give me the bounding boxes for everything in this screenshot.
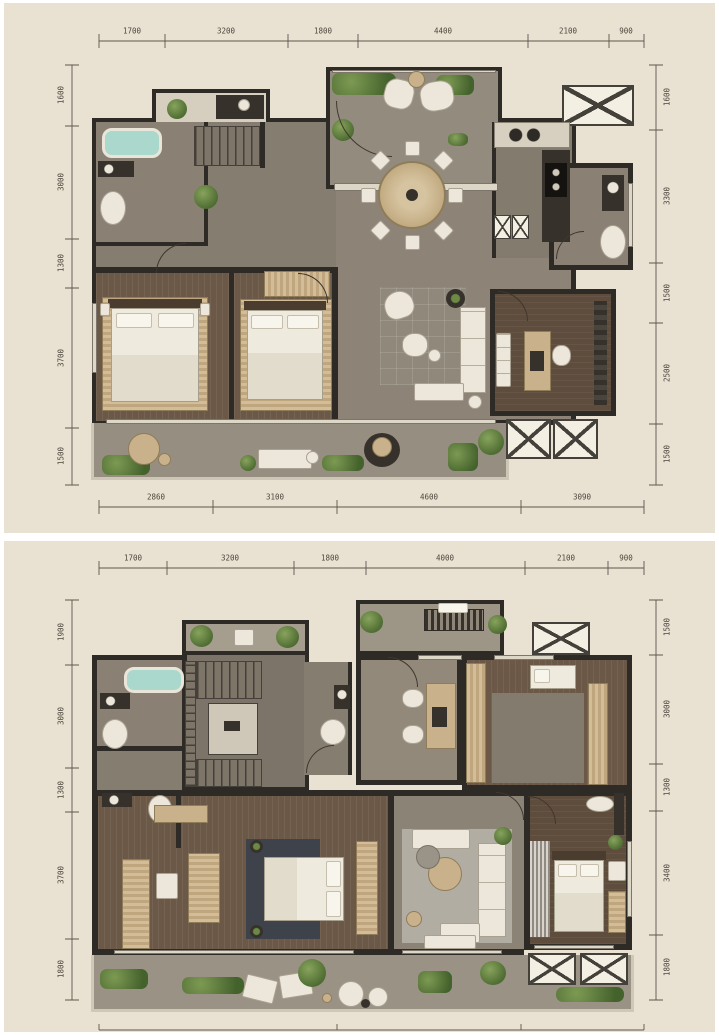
pouf [406, 911, 422, 927]
basin [586, 796, 614, 812]
floor-plan-sheet: { "palette": { "paper": "#e9e1d1", "wall… [0, 0, 719, 1035]
nightstand [100, 303, 110, 316]
nightstand [608, 861, 626, 881]
dimension-label: 3200 [217, 27, 235, 35]
dimension-label: 1600 [57, 86, 65, 104]
dimension-label: 1500 [57, 447, 65, 465]
ottoman [428, 349, 441, 362]
vanity-sink [100, 693, 130, 709]
side-table [322, 993, 332, 1003]
monitor [432, 707, 447, 727]
entry-basin [238, 99, 250, 111]
sill-plant [448, 133, 468, 146]
bench-cushion [438, 603, 468, 613]
bench [188, 853, 220, 923]
dimension-label: 3000 [663, 700, 671, 718]
cooktop [545, 163, 567, 197]
stairs [196, 759, 262, 787]
dimension-label: 1300 [663, 778, 671, 796]
dimension-label: 3090 [573, 493, 591, 501]
coffee-table [416, 845, 440, 869]
pillow [158, 313, 194, 328]
blanket [555, 893, 603, 931]
appliance [512, 215, 529, 239]
console-table [414, 383, 464, 401]
shrubs [448, 443, 478, 471]
pillow [558, 864, 577, 877]
window [494, 655, 554, 660]
dimension-label: 2860 [147, 493, 165, 501]
console-table [424, 935, 476, 949]
armchair [402, 333, 428, 357]
plant [298, 959, 326, 987]
blanket [248, 353, 322, 399]
toilet [600, 225, 626, 259]
dining-chair [405, 141, 420, 156]
dimension-label: 3300 [663, 187, 671, 205]
bench [608, 891, 626, 933]
cabinet [614, 793, 624, 835]
plant [480, 961, 506, 985]
plant [190, 625, 213, 647]
dining-chair [405, 235, 420, 250]
fire-bowl [361, 999, 370, 1008]
dimension-label: 3100 [266, 493, 284, 501]
plant [240, 455, 256, 471]
dimension-label: 3200 [221, 554, 239, 562]
plant [488, 615, 507, 634]
blanket [265, 858, 297, 920]
side-table [156, 873, 178, 899]
shrubs [322, 455, 364, 471]
ac-platform-unit [506, 419, 551, 459]
pillow [534, 669, 550, 683]
office-chair [552, 345, 571, 366]
basin-top [372, 437, 392, 457]
lounger [258, 449, 312, 469]
headboard-panel [356, 841, 378, 935]
toilet [100, 191, 126, 225]
stairs [185, 661, 196, 787]
ac-platform-unit [528, 953, 576, 985]
pillow [251, 315, 283, 329]
window [628, 183, 633, 247]
desk-chair [402, 725, 424, 744]
wardrobe [466, 663, 486, 783]
bookshelf [496, 333, 511, 387]
dimension-label: 900 [619, 554, 633, 562]
toilet [102, 719, 128, 749]
dimension-label: 1700 [123, 27, 141, 35]
potted-plant [250, 925, 263, 938]
dimension-label: 1700 [124, 554, 142, 562]
side-table [468, 395, 482, 409]
wall [260, 122, 265, 168]
plant [608, 835, 623, 850]
potted-plant [250, 840, 263, 853]
toilet [320, 719, 346, 745]
outdoor-chair [368, 987, 388, 1007]
vanity-sink [334, 685, 350, 709]
dimension-label: 1800 [57, 960, 65, 978]
dimension-label: 1900 [57, 623, 65, 641]
stair-console [224, 721, 240, 731]
rattan-stool [158, 453, 171, 466]
table-centerpiece [406, 189, 418, 201]
vanity-sink [102, 793, 132, 807]
dimension-label: 1500 [663, 445, 671, 463]
elevator-shaft [532, 622, 590, 655]
curtain-panel [530, 841, 550, 937]
dimension-label: 3000 [57, 707, 65, 725]
cushion [306, 451, 319, 464]
desk-chair [402, 689, 424, 708]
shrubs [182, 977, 244, 994]
wardrobe [122, 859, 150, 949]
plant [167, 99, 187, 119]
potted-plant [446, 289, 465, 308]
pillow [287, 315, 319, 329]
dimension-label: 2500 [663, 364, 671, 382]
dining-chair [448, 188, 463, 203]
dimension-label: 1800 [314, 27, 332, 35]
window [114, 950, 354, 954]
rug [492, 693, 584, 783]
plant [194, 185, 218, 209]
vanity-sink [602, 175, 624, 211]
dimension-label: 2100 [559, 27, 577, 35]
elevator-shaft [562, 85, 634, 126]
floor-plan-upper-panel: 1700 3200 1800 4400 2100 900 2860 3100 4… [4, 3, 715, 533]
window [418, 655, 462, 660]
dimension-label: 3400 [663, 864, 671, 882]
appliance [494, 215, 511, 239]
dimension-label: 1500 [663, 618, 671, 636]
floor-plan-lower-panel: 1700 3200 1800 4000 2100 900 1900 3000 1… [4, 541, 715, 1032]
dimension-label: 2100 [557, 554, 575, 562]
plant [276, 626, 299, 648]
plant [478, 429, 504, 455]
shrubs [100, 969, 148, 989]
wardrobe [588, 683, 608, 785]
shrubs [418, 971, 452, 993]
storage-cabinet [594, 301, 607, 405]
shrubs [556, 987, 624, 1002]
bathtub [124, 667, 184, 693]
sofa [460, 307, 486, 393]
pillow [580, 864, 599, 877]
plant [360, 611, 383, 633]
plant [494, 827, 512, 845]
pillow [326, 891, 341, 917]
dimension-label: 1300 [57, 254, 65, 272]
kitchen-counter [494, 122, 570, 148]
blanket [112, 355, 198, 401]
nightstand [200, 303, 210, 316]
headboard [108, 299, 202, 308]
pillow [116, 313, 152, 328]
dimension-label: 1600 [663, 88, 671, 106]
window [534, 945, 614, 949]
dimension-label: 1800 [663, 958, 671, 976]
window [92, 303, 97, 373]
sofa [478, 843, 506, 937]
dimension-label: 3700 [57, 866, 65, 884]
ac-platform-unit [553, 419, 598, 459]
outdoor-table [408, 71, 425, 88]
bathtub [102, 128, 162, 158]
dimension-label: 1500 [663, 284, 671, 302]
dimension-label: 4000 [436, 554, 454, 562]
stairs [194, 126, 262, 166]
vanity-sink [98, 161, 134, 177]
dimension-label: 4600 [420, 493, 438, 501]
dimension-label: 3700 [57, 349, 65, 367]
monitor [530, 351, 544, 371]
pillow [326, 861, 341, 887]
stairs [196, 661, 262, 699]
headboard [552, 851, 606, 860]
dimension-label: 4400 [434, 27, 452, 35]
dimension-label: 3000 [57, 173, 65, 191]
console-table [154, 805, 208, 823]
window [627, 841, 632, 917]
dimension-label: 1800 [321, 554, 339, 562]
dimension-label: 1300 [57, 781, 65, 799]
ac-platform-unit [580, 953, 628, 985]
rattan-table [128, 433, 160, 465]
dimension-label: 900 [619, 27, 633, 35]
window [402, 950, 502, 954]
balcony-chair [234, 629, 254, 646]
window [106, 419, 496, 424]
dining-chair [361, 188, 376, 203]
